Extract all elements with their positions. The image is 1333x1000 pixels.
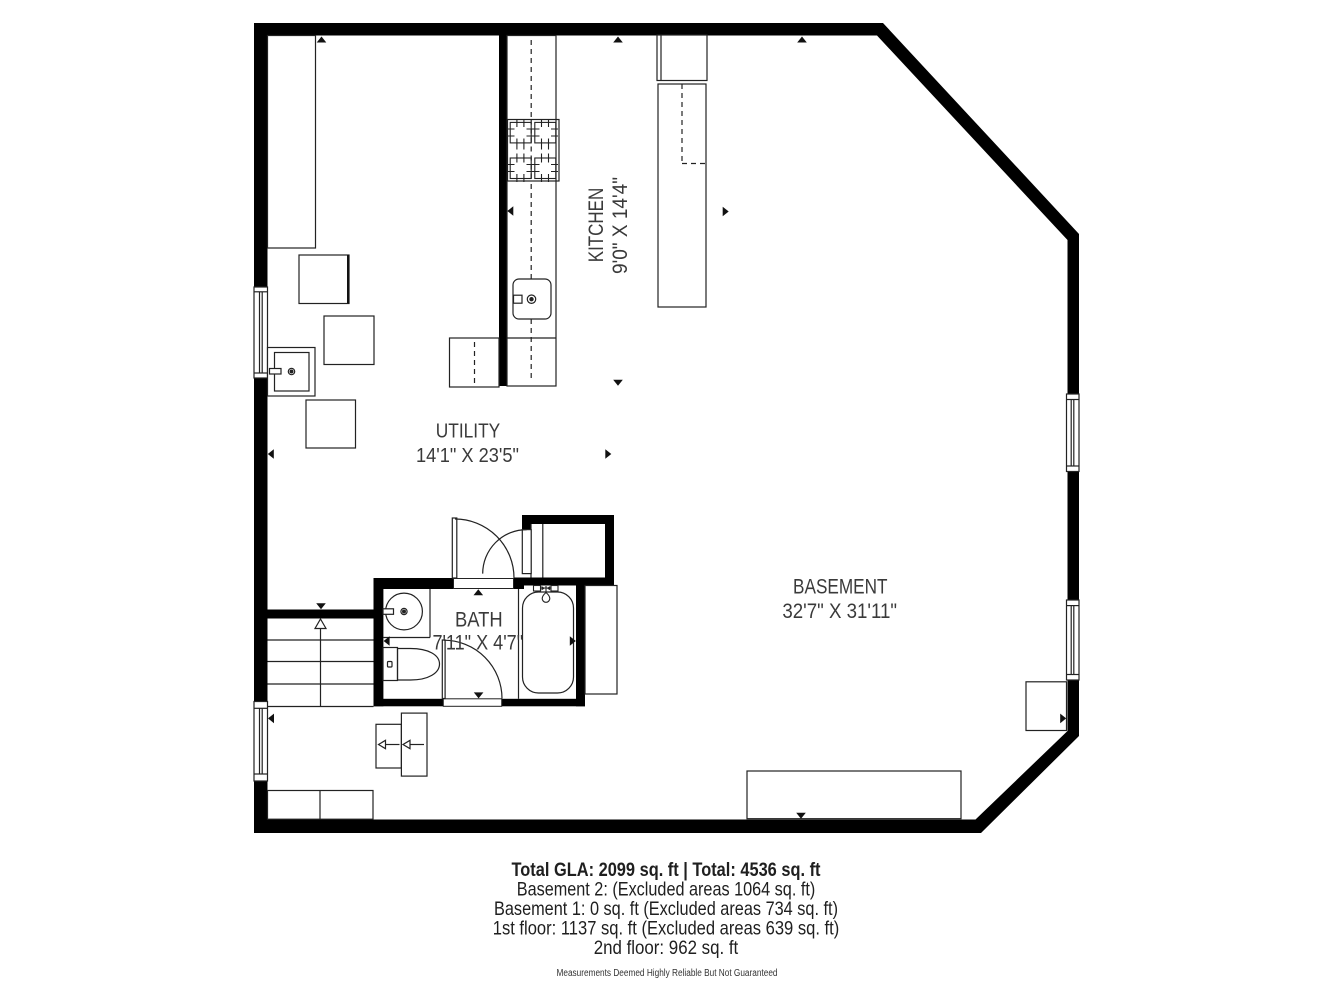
svg-text:Measurements Deemed Highly Rel: Measurements Deemed Highly Reliable But … <box>557 968 778 979</box>
svg-text:Total GLA: 2099 sq. ft | Total: Total GLA: 2099 sq. ft | Total: 4536 sq.… <box>512 859 821 881</box>
svg-text:UTILITY: UTILITY <box>436 420 501 443</box>
svg-text:KITCHEN: KITCHEN <box>585 188 608 263</box>
svg-text:BASEMENT: BASEMENT <box>793 576 888 599</box>
svg-text:14'1" X 23'5": 14'1" X 23'5" <box>416 444 519 467</box>
svg-text:BATH: BATH <box>455 609 503 632</box>
svg-text:32'7" X 31'11": 32'7" X 31'11" <box>782 600 897 623</box>
svg-text:9'0" X 14'4": 9'0" X 14'4" <box>609 177 632 274</box>
svg-text:7'11" X 4'7": 7'11" X 4'7" <box>432 632 523 655</box>
svg-text:2nd floor: 962 sq. ft: 2nd floor: 962 sq. ft <box>594 937 739 959</box>
